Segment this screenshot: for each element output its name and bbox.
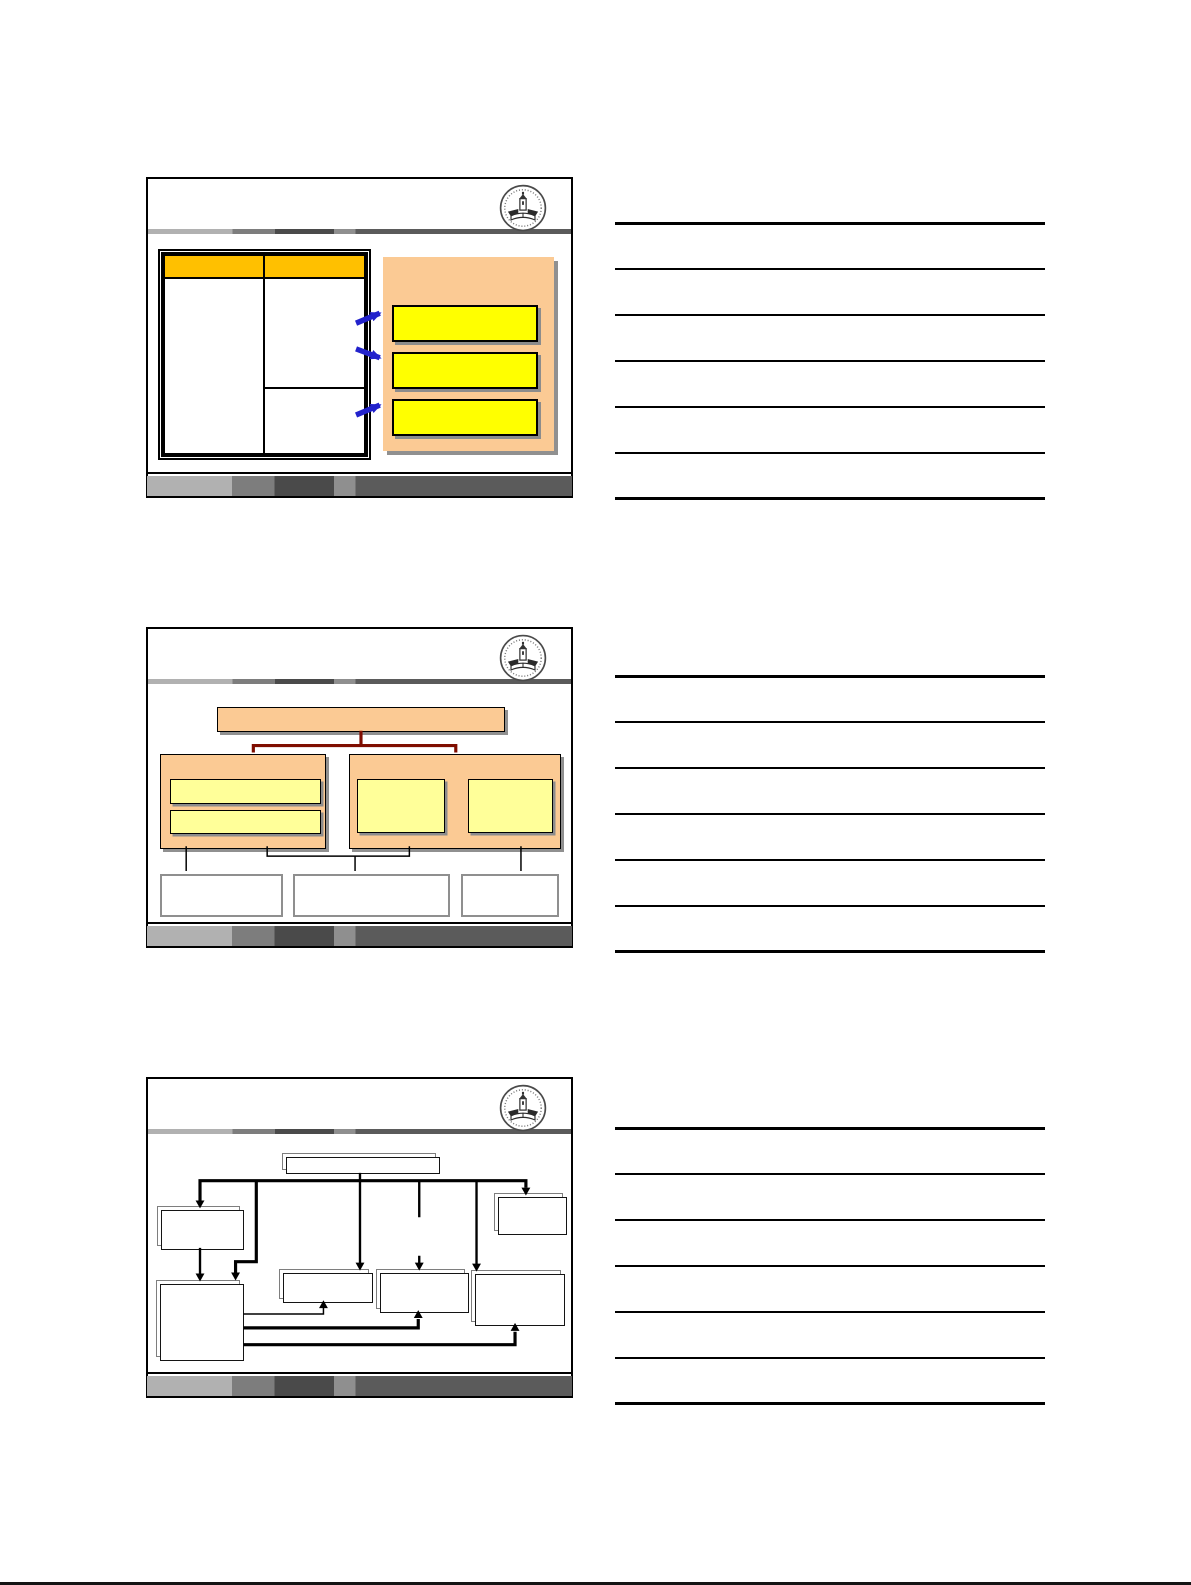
hierarchy-root-bar <box>217 707 505 732</box>
note-line <box>615 360 1045 363</box>
flow-right-box <box>471 1270 561 1322</box>
outcome-box-right <box>461 874 559 917</box>
university-seal-logo <box>498 1083 548 1133</box>
group-left-item-2 <box>170 810 321 834</box>
note-line <box>615 1311 1045 1314</box>
outcome-box-middle <box>293 874 450 917</box>
hierarchy-group-right <box>349 754 561 849</box>
notes-lines-slide-1 <box>615 222 1045 502</box>
footer-rule <box>148 472 571 475</box>
footer-gradient-bar <box>147 926 572 946</box>
group-right-item-1 <box>357 779 445 833</box>
callout-box-1 <box>392 305 538 342</box>
university-seal-logo <box>498 183 548 233</box>
note-line <box>615 1127 1045 1130</box>
note-line <box>615 1265 1045 1268</box>
note-line <box>615 268 1045 271</box>
handout-page <box>0 0 1191 1585</box>
group-left-item-1 <box>170 779 321 804</box>
note-line <box>615 767 1045 770</box>
note-line <box>615 721 1045 724</box>
note-line <box>615 452 1045 455</box>
notes-lines-slide-2 <box>615 675 1045 955</box>
return-to-middle-2 <box>243 1319 418 1328</box>
table-right-row-divider <box>265 387 364 389</box>
maroon-connector <box>253 731 455 753</box>
two-column-table <box>161 252 368 457</box>
slide-2-thumbnail <box>146 627 573 948</box>
note-line <box>615 406 1045 409</box>
flow-middle-box-2 <box>376 1269 465 1309</box>
black-connectors <box>186 846 521 871</box>
note-line <box>615 497 1045 500</box>
university-seal-logo <box>498 633 548 683</box>
note-line <box>615 813 1045 816</box>
note-line <box>615 314 1045 317</box>
footer-rule <box>148 922 571 925</box>
group-right-item-2 <box>468 779 553 833</box>
hierarchy-group-left <box>160 754 326 849</box>
note-line <box>615 950 1045 953</box>
footer-gradient-bar <box>147 1376 572 1396</box>
table-column-divider <box>263 256 265 453</box>
callout-box-3 <box>392 399 538 436</box>
note-line <box>615 675 1045 678</box>
return-to-right-box <box>243 1332 515 1345</box>
notes-lines-slide-3 <box>615 1127 1045 1407</box>
return-to-middle-1 <box>243 1307 323 1314</box>
note-line <box>615 1357 1045 1360</box>
flow-top-box <box>282 1153 436 1170</box>
note-line <box>615 859 1045 862</box>
note-line <box>615 1173 1045 1176</box>
flow-upper-left-box <box>157 1206 240 1246</box>
note-line <box>615 222 1045 225</box>
flow-upper-right-box <box>494 1193 563 1231</box>
slide-3-thumbnail <box>146 1077 573 1398</box>
footer-rule <box>148 1372 571 1375</box>
flow-main-left-box <box>156 1280 240 1357</box>
footer-gradient-bar <box>147 476 572 496</box>
slide-1-thumbnail <box>146 177 573 498</box>
callout-panel <box>383 257 554 451</box>
distribution-line <box>200 1181 526 1201</box>
outcome-box-left <box>160 874 283 917</box>
note-line <box>615 1402 1045 1405</box>
flow-middle-box-1 <box>279 1269 369 1299</box>
note-line <box>615 905 1045 908</box>
note-line <box>615 1219 1045 1222</box>
callout-box-2 <box>392 352 538 389</box>
